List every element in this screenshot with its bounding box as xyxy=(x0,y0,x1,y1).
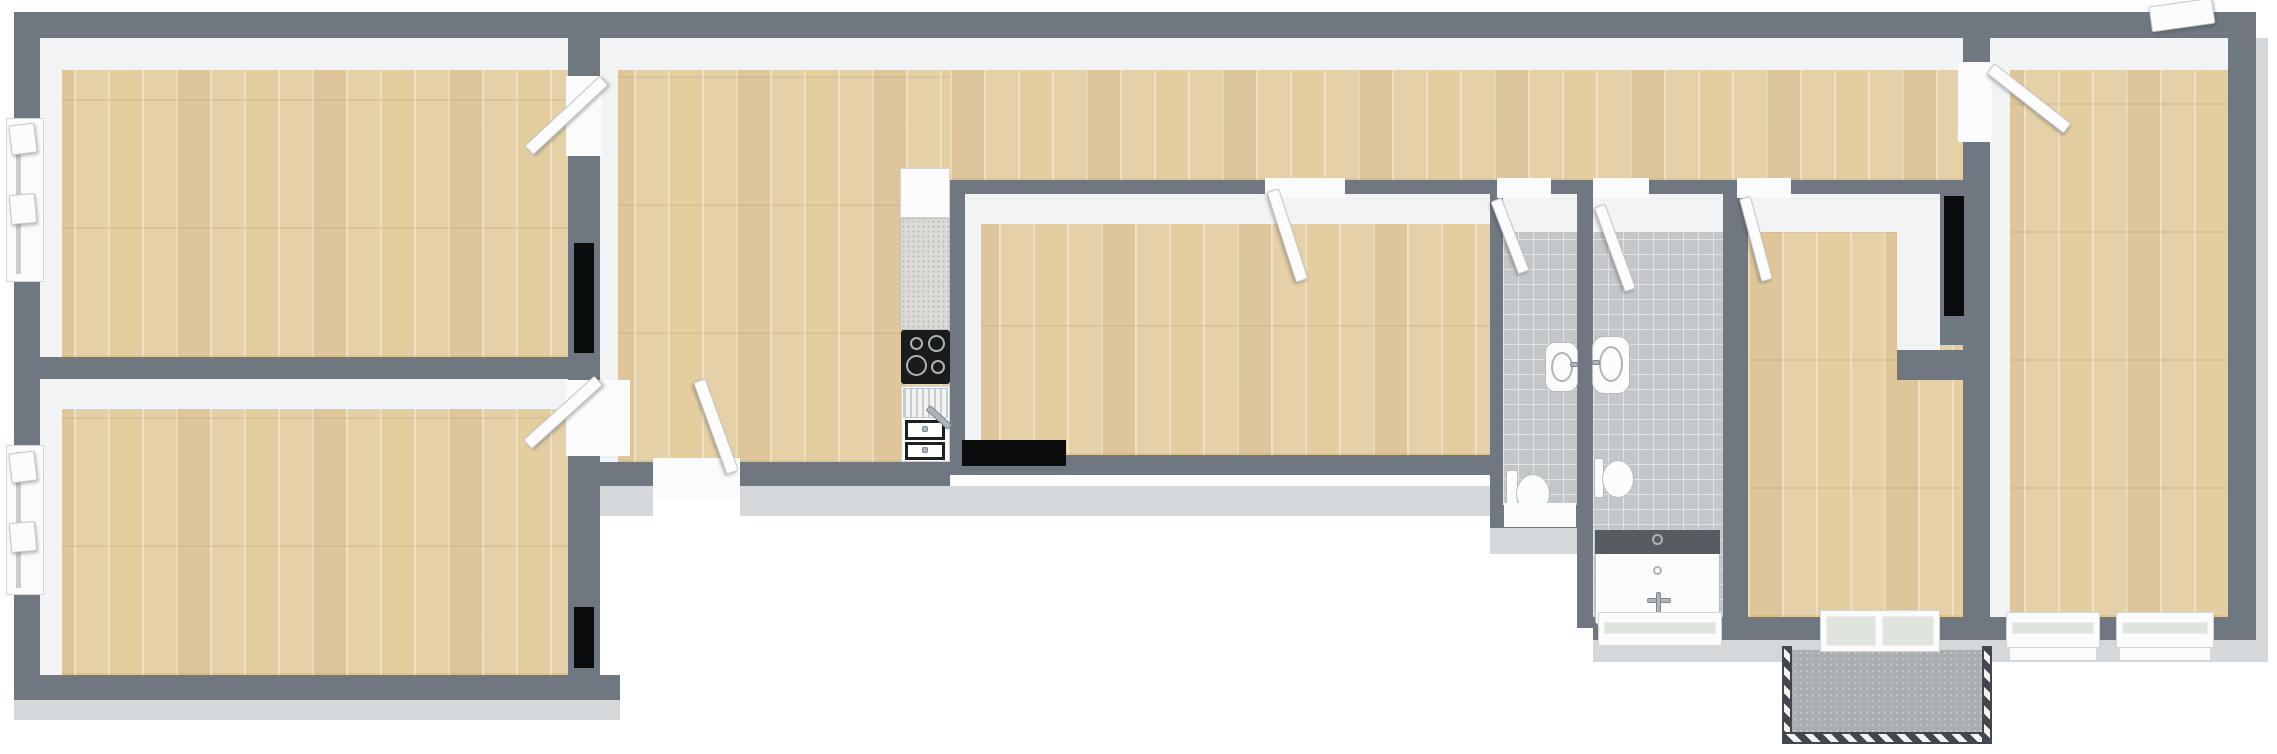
window-sash-a1 xyxy=(8,123,37,156)
window-bedroom-right-2-pane xyxy=(2122,622,2208,634)
balcony-railing-right xyxy=(1982,646,1992,744)
wall-living-top-a xyxy=(965,180,1265,194)
wall-left-exterior xyxy=(14,12,40,700)
wc-sink-bowl xyxy=(1551,352,1573,382)
skirt-right-edge xyxy=(2256,38,2268,662)
kitchen-counter xyxy=(900,218,950,330)
window-bedroom-right-1-sill xyxy=(2010,648,2096,660)
wall-bath-right xyxy=(1723,194,1748,628)
balcony-railing-bottom xyxy=(1782,732,1992,744)
face-top xyxy=(40,38,2228,70)
face-living-top xyxy=(965,194,1490,224)
kitchen-drainboard xyxy=(903,388,948,418)
threshold-bath-door xyxy=(1593,178,1649,198)
wall-wc-bath-divider xyxy=(1577,194,1593,628)
radiator-bedroom-bottom-left xyxy=(574,607,594,668)
wall-bottom-left-exterior xyxy=(14,675,620,700)
wall-bath-bottom-c xyxy=(1937,617,1990,640)
wall-bedroom-divider xyxy=(40,357,568,379)
face-bedroom-right-left xyxy=(1990,70,2010,617)
wall-bedroom-right-left xyxy=(1963,142,1990,617)
skirt-hall-left xyxy=(600,486,653,516)
threshold-wc-door xyxy=(1497,178,1551,198)
floor-living-room xyxy=(965,194,1490,455)
bathtub-faucet-stem xyxy=(1656,592,1661,614)
threshold-room-e-door xyxy=(1737,178,1791,198)
cooktop-burner-small-2 xyxy=(931,360,945,374)
floor-plan xyxy=(0,0,2277,754)
face-living-left xyxy=(965,224,981,455)
balcony-railing-left xyxy=(1782,646,1792,742)
bathtub-overflow xyxy=(1652,534,1663,545)
kitchen-tall-unit xyxy=(900,168,950,218)
face-wc-top xyxy=(1503,194,1577,232)
wall-bath-bottom-b xyxy=(1720,617,1823,640)
floor-bedroom-right xyxy=(1990,38,2228,617)
bath-sink-tap xyxy=(1592,360,1600,365)
floor-balcony xyxy=(1792,650,1982,732)
skirt-hall-right xyxy=(740,486,1503,516)
wall-left-rooms-right-a xyxy=(568,38,600,76)
bath-toilet-bowl xyxy=(1602,460,1634,498)
wall-kitchen xyxy=(950,180,965,462)
window-bathroom-pane xyxy=(1604,622,1716,634)
cooktop-burner-large xyxy=(906,355,927,376)
wall-corridor-d xyxy=(1649,180,1737,194)
radiator-bedroom-top-left xyxy=(574,243,594,353)
wall-living-right xyxy=(1490,180,1503,528)
window-sash-b1 xyxy=(8,451,37,484)
wall-hall-bottom-left xyxy=(600,462,653,486)
wc-sink-tap xyxy=(1570,362,1578,367)
floor-bedroom-top-left xyxy=(40,38,568,357)
bathtub-drain xyxy=(1653,566,1662,575)
window-sash-b2 xyxy=(9,521,38,553)
radiator-living-room xyxy=(962,440,1066,466)
wc-bottom-sill xyxy=(1504,503,1576,527)
kitchen-sink-drain-1 xyxy=(922,426,928,432)
floor-bedroom-bottom-left xyxy=(40,379,568,675)
wall-bedroom-right-bottom-b xyxy=(2098,617,2118,640)
floor-hall xyxy=(600,38,950,462)
cooktop-burner-small-1 xyxy=(910,337,923,350)
radiator-niche-right xyxy=(1944,196,1964,316)
wall-corridor-e xyxy=(1791,180,1963,194)
wall-hall-bottom-right xyxy=(740,462,950,486)
face-bedroom2-top xyxy=(40,379,568,409)
window-sash-a2 xyxy=(9,193,38,225)
bath-sink-bowl xyxy=(1599,346,1623,382)
balcony-door-pane-2 xyxy=(1882,616,1934,646)
kitchen-sink-drain-2 xyxy=(922,447,928,453)
wall-niche-step xyxy=(1897,350,1963,380)
wall-corridor-c xyxy=(1551,180,1593,194)
wall-right-exterior xyxy=(2228,38,2256,640)
wall-bedroom-right-left-stub xyxy=(1963,38,1990,62)
skirt-bottom-left xyxy=(14,700,620,720)
wall-top-exterior xyxy=(14,12,2256,38)
window-bedroom-right-2-sill xyxy=(2120,648,2210,660)
balcony-door-pane-1 xyxy=(1826,616,1876,646)
face-niche xyxy=(1897,194,1940,350)
window-bedroom-right-1-pane xyxy=(2012,622,2094,634)
wall-living-top-b xyxy=(1345,180,1497,194)
cooktop-burner-medium xyxy=(928,335,945,352)
